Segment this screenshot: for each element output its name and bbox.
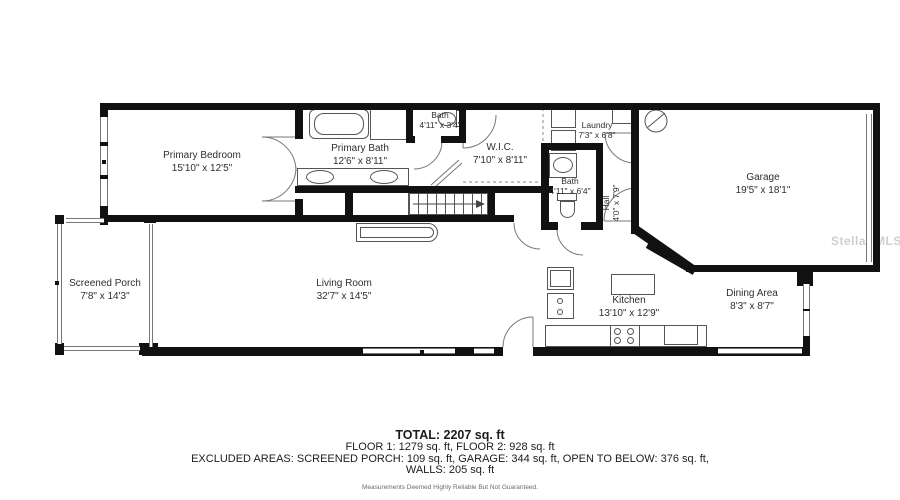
door-arc <box>514 223 540 249</box>
door-arc <box>557 229 583 255</box>
window <box>718 348 802 354</box>
room-label-living-room: Living Room 32'7" x 14'5" <box>316 278 372 303</box>
shower-icon <box>370 106 410 140</box>
room-label-screened-porch: Screened Porch 7'8" x 14'3" <box>69 278 141 303</box>
sink-icon <box>306 170 334 184</box>
wall <box>541 143 603 150</box>
room-name: Bath <box>549 176 590 186</box>
dishwasher-icon <box>664 325 698 345</box>
room-dims: 15'10" x 12'5" <box>163 163 241 176</box>
window <box>100 179 108 206</box>
wall-tick <box>875 182 879 186</box>
kitchen-sink-icon <box>547 293 574 319</box>
room-dims: 7'3" x 6'8" <box>578 130 615 140</box>
wall <box>488 215 514 222</box>
window <box>66 218 104 223</box>
wall <box>541 143 549 230</box>
door-arc <box>503 317 533 347</box>
wall <box>100 215 490 222</box>
walls-area-text: WALLS: 205 sq. ft <box>0 465 900 477</box>
window <box>803 311 810 336</box>
room-name: Kitchen <box>599 295 659 308</box>
wall-tick <box>352 105 356 109</box>
room-label-wic: W.I.C. 7'10" x 8'11" <box>473 142 527 167</box>
room-dims: 7'8" x 14'3" <box>69 291 141 304</box>
wall <box>797 265 813 286</box>
sink-icon <box>553 157 573 173</box>
angled-door <box>431 160 459 185</box>
stove-icon <box>627 337 634 344</box>
wall <box>541 222 558 230</box>
wall <box>873 103 880 272</box>
room-label-primary-bath: Primary Bath 12'6" x 8'11" <box>331 143 389 168</box>
bathtub-icon <box>314 113 364 135</box>
room-dims: 4'0" x 7'9" <box>611 184 621 221</box>
wall-tick <box>55 281 59 285</box>
room-label-kitchen: Kitchen 13'10" x 12'9" <box>599 295 659 320</box>
console-table <box>360 227 434 238</box>
room-label-primary-bedroom: Primary Bedroom 15'10" x 12'5" <box>163 150 241 175</box>
room-name: Primary Bath <box>331 143 389 156</box>
wall-tick <box>700 105 704 109</box>
floor-areas-text: FLOOR 1: 1279 sq. ft, FLOOR 2: 928 sq. f… <box>0 442 900 454</box>
door-arc <box>414 141 442 169</box>
wall-tick <box>420 350 424 354</box>
floor-plan: Stellar MLS <box>0 0 900 500</box>
wall-tick <box>102 160 106 164</box>
wall-tick <box>222 350 226 354</box>
door-arc <box>262 167 296 201</box>
stove-icon <box>627 328 634 335</box>
room-name: Dining Area <box>726 288 778 301</box>
wall-tick <box>793 105 797 109</box>
wall-corner <box>55 343 64 355</box>
staircase <box>408 193 488 215</box>
stove-icon <box>614 337 621 344</box>
room-name: Hall <box>601 184 611 221</box>
washer-icon <box>551 107 576 128</box>
wall <box>686 265 880 272</box>
wall-tick <box>563 105 567 109</box>
garage-door <box>866 114 872 262</box>
wall-corner <box>55 215 64 224</box>
refrigerator-icon <box>550 270 571 287</box>
plan-line-layer <box>0 0 900 500</box>
room-label-laundry: Laundry 7'3" x 6'8" <box>578 120 615 140</box>
stove-icon <box>614 328 621 335</box>
room-dims: 7'10" x 8'11" <box>473 155 527 168</box>
wall <box>631 103 639 234</box>
room-label-garage: Garage 19'5" x 18'1" <box>736 172 791 197</box>
toilet-icon <box>560 201 575 218</box>
wall-tick <box>233 105 237 109</box>
room-label-hall: Hall 4'0" x 7'9" <box>601 184 621 221</box>
room-dims: 32'7" x 14'5" <box>316 291 372 304</box>
room-name: Garage <box>736 172 791 185</box>
wall-tick <box>770 267 774 271</box>
wall <box>406 136 415 143</box>
room-dims: 8'3" x 8'7" <box>726 301 778 314</box>
window <box>363 348 455 354</box>
room-name: Laundry <box>578 120 615 130</box>
room-name: Bath <box>419 110 460 120</box>
wall-tick <box>488 105 492 109</box>
room-dims: 12'6" x 8'11" <box>331 156 389 169</box>
screen-wall <box>149 224 153 347</box>
kitchen-sink-icon <box>557 298 563 304</box>
screen-wall <box>64 346 140 351</box>
electrical-panel-icon <box>647 113 665 128</box>
room-name: Primary Bedroom <box>163 150 241 163</box>
wall-tick <box>664 350 668 354</box>
wall <box>295 103 303 139</box>
door-arc <box>262 137 296 171</box>
room-name: W.I.C. <box>473 142 527 155</box>
kitchen-sink-icon <box>557 309 563 315</box>
wall-tick <box>352 216 356 220</box>
room-name: Living Room <box>316 278 372 291</box>
kitchen-island <box>611 274 655 295</box>
room-dims: 13'10" x 12'9" <box>599 308 659 321</box>
room-label-dining-area: Dining Area 8'3" x 8'7" <box>726 288 778 313</box>
room-dims: 4'11" x 6'4" <box>549 186 590 196</box>
window <box>474 348 494 354</box>
disclaimer-text: Measurements Deemed Highly Reliable But … <box>0 484 900 491</box>
room-dims: 19'5" x 18'1" <box>736 185 791 198</box>
room-name: Screened Porch <box>69 278 141 291</box>
window <box>100 117 108 142</box>
angled-door <box>434 163 462 188</box>
room-label-bath-upper: Bath 4'11" x 3'4" <box>419 110 460 130</box>
room-dims: 4'11" x 3'4" <box>419 120 460 130</box>
wall-tick <box>225 216 229 220</box>
area-summary: TOTAL: 2207 sq. ft FLOOR 1: 1279 sq. ft,… <box>0 429 900 491</box>
wall-corner <box>144 215 156 223</box>
sink-icon <box>370 170 398 184</box>
wall <box>295 186 553 193</box>
window <box>803 284 810 309</box>
room-label-bath-hall: Bath 4'11" x 6'4" <box>549 176 590 196</box>
wall <box>581 222 603 230</box>
